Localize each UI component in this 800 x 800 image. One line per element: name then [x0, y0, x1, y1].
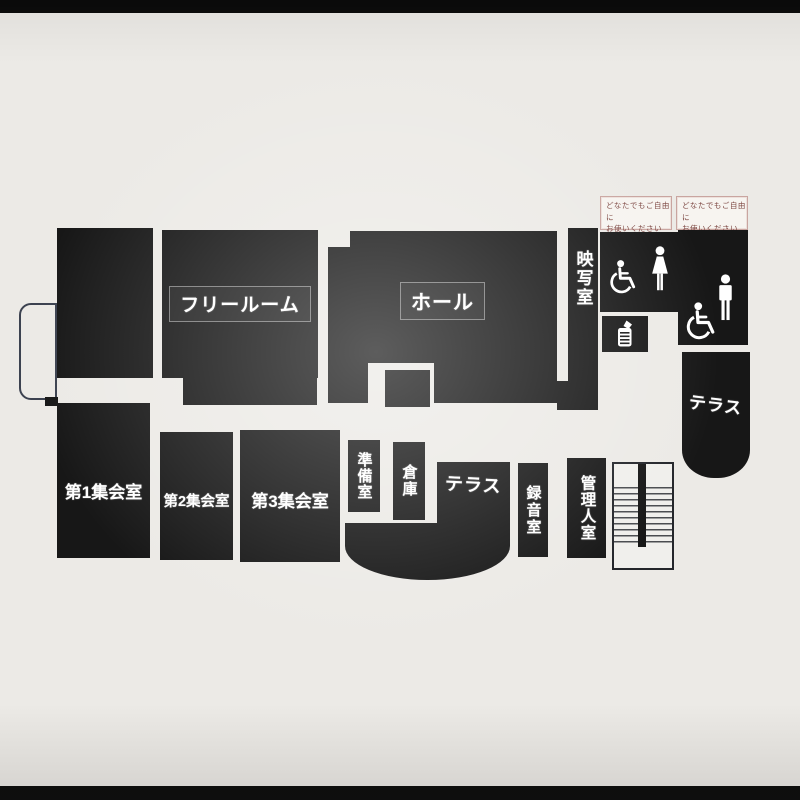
recording-room-label: 録音室	[523, 485, 544, 536]
diaper-changing-icon	[612, 319, 638, 349]
terrace-south-label: テラス	[445, 469, 503, 498]
wheelchair-icon	[682, 300, 722, 340]
prep-room-label: 準備室	[354, 452, 375, 500]
hall-label: ホール	[400, 282, 485, 320]
room-caretaker: 管理人室	[567, 458, 606, 558]
room-meeting-2: 第2集会室	[160, 432, 233, 560]
hall-projection-connector	[557, 381, 568, 410]
storage-label: 倉庫	[399, 464, 420, 498]
meeting-room-3-label: 第3集会室	[251, 487, 328, 512]
free-use-sign-right: どなたでもご自由に お使いください	[676, 196, 748, 230]
room-terrace-south: テラス	[437, 462, 510, 523]
room-recording: 録音室	[518, 463, 548, 557]
free-room-extension	[183, 378, 317, 405]
facility-box	[602, 316, 648, 352]
hall-stub-wall	[385, 370, 430, 407]
woman-icon	[648, 244, 672, 294]
room-prep: 準備室	[348, 440, 380, 512]
room-free-room: フリールーム	[162, 230, 318, 378]
room-terrace-east: テラス	[682, 352, 750, 478]
room-hall: ホール	[328, 231, 557, 403]
terrace-south-curved-band	[345, 523, 510, 580]
room-meeting-1: 第1集会室	[57, 403, 150, 558]
caretaker-room-label: 管理人室	[576, 475, 598, 541]
room-meeting-3: 第3集会室	[240, 430, 340, 562]
stair-handrail	[638, 464, 646, 547]
photo-frame-top	[0, 0, 800, 13]
room-storage: 倉庫	[393, 442, 425, 520]
free-use-sign-left: どなたでもご自由に お使いください	[600, 196, 672, 230]
sign-left-line1: どなたでもご自由に	[606, 200, 671, 223]
entrance-outline	[19, 303, 57, 400]
meeting-room-1-label: 第1集会室	[65, 478, 142, 503]
meeting-room-2-label: 第2集会室	[163, 490, 229, 511]
projection-room-label: 映写室	[571, 250, 596, 410]
free-room-label: フリールーム	[169, 286, 310, 322]
restroom-accessible-men	[678, 230, 748, 345]
wheelchair-icon	[606, 258, 642, 294]
terrace-east-label: テラス	[688, 387, 744, 418]
photo-frame-bottom	[0, 786, 800, 800]
lobby-block	[57, 228, 153, 378]
sign-right-line1: どなたでもご自由に	[682, 200, 747, 223]
hall-top-notch	[328, 231, 350, 247]
floor-map-photo: フリールーム ホール 映写室 どなたでもご自由に お使いください どなたでもご自…	[0, 0, 800, 800]
restroom-accessible-women	[600, 232, 678, 312]
room-projection: 映写室	[568, 228, 598, 410]
stairs	[612, 462, 674, 570]
